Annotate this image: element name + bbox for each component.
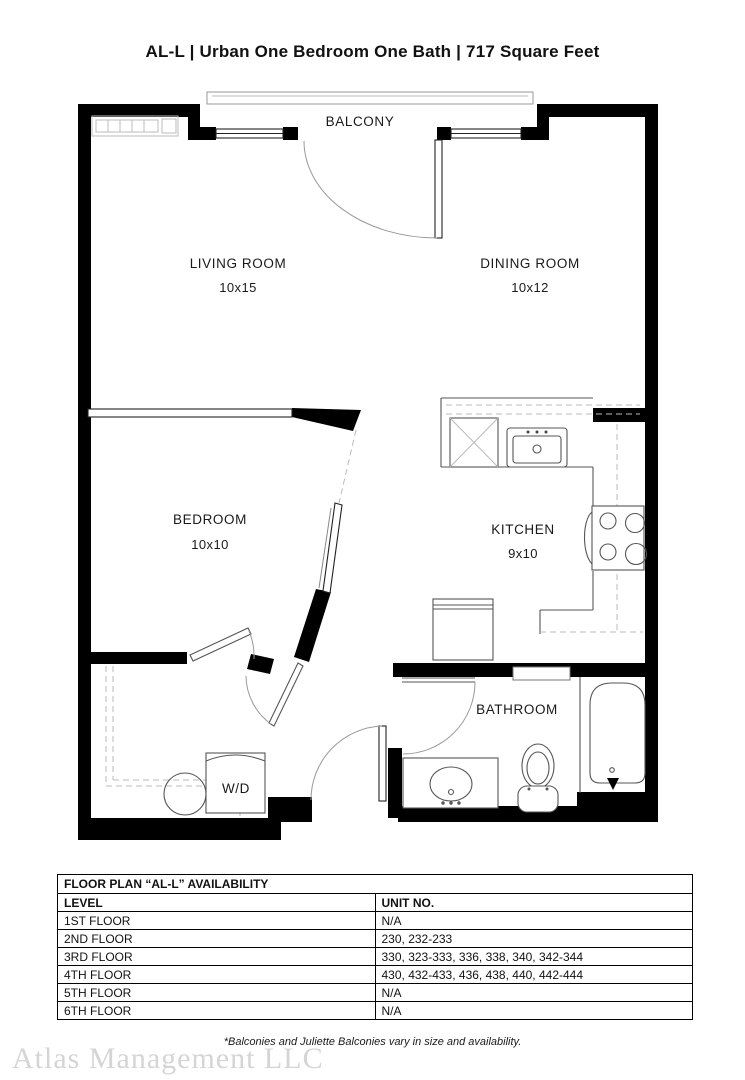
bedroom-label: BEDROOM [173,512,247,527]
refrigerator [433,599,493,660]
table-title-row: FLOOR PLAN “AL-L” AVAILABILITY [58,875,693,894]
units-cell: 330, 323-333, 336, 338, 340, 342-344 [375,948,693,966]
units-cell: 430, 432-433, 436, 438, 440, 442-444 [375,966,693,984]
dining-room-label: DINING ROOM [480,256,580,271]
table-row: 1ST FLOOR N/A [58,912,693,930]
column-header-units: UNIT NO. [375,894,693,912]
stove [585,506,647,570]
balcony-label: BALCONY [326,114,395,129]
bathroom-shelf [513,667,570,680]
table-row: 5TH FLOOR N/A [58,984,693,1002]
dining-room-dimensions: 10x12 [511,280,548,295]
balcony-door [304,140,442,238]
units-cell: 230, 232-233 [375,930,693,948]
floor-plan-page: AL-L | Urban One Bedroom One Bath | 717 … [0,0,745,1080]
table-row: 3RD FLOOR 330, 323-333, 336, 338, 340, 3… [58,948,693,966]
vanity-sink [403,758,498,808]
bathroom-door [402,678,475,754]
level-cell: 4TH FLOOR [58,966,376,984]
availability-table: FLOOR PLAN “AL-L” AVAILABILITY LEVEL UNI… [57,874,693,1020]
half-wall [88,409,292,417]
baseboard-heater [92,116,178,136]
level-cell: 5TH FLOOR [58,984,376,1002]
toilet [518,744,558,812]
level-cell: 2ND FLOOR [58,930,376,948]
level-cell: 1ST FLOOR [58,912,376,930]
window [216,129,283,138]
closet-door [246,663,303,726]
living-room-label: LIVING ROOM [190,256,287,271]
table-row: 2ND FLOOR 230, 232-233 [58,930,693,948]
water-heater [164,773,206,815]
washer-dryer: W/D [206,753,265,813]
kitchen-dimensions: 9x10 [508,546,538,561]
table-header-row: LEVEL UNIT NO. [58,894,693,912]
column-header-level: LEVEL [58,894,376,912]
units-cell: N/A [375,912,693,930]
living-room-dimensions: 10x15 [219,280,256,295]
bathroom-label: BATHROOM [476,702,558,717]
pocket-door [319,430,356,593]
bathtub [580,677,645,793]
table-title: FLOOR PLAN “AL-L” AVAILABILITY [58,875,693,894]
kitchen-label: KITCHEN [491,522,554,537]
level-cell: 3RD FLOOR [58,948,376,966]
units-cell: N/A [375,1002,693,1020]
bedroom-door [190,628,254,661]
table-row: 6TH FLOOR N/A [58,1002,693,1020]
table-row: 4TH FLOOR 430, 432-433, 436, 438, 440, 4… [58,966,693,984]
bedroom-dimensions: 10x10 [191,537,228,552]
laundry-label: W/D [222,781,250,796]
kitchen-sink [507,428,567,467]
balcony-rail [207,92,533,104]
footnote: *Balconies and Juliette Balconies vary i… [224,1036,522,1048]
dishwasher [450,418,498,467]
walls [78,104,658,840]
entry-door [311,726,386,801]
level-cell: 6TH FLOOR [58,1002,376,1020]
units-cell: N/A [375,984,693,1002]
window [451,129,521,138]
